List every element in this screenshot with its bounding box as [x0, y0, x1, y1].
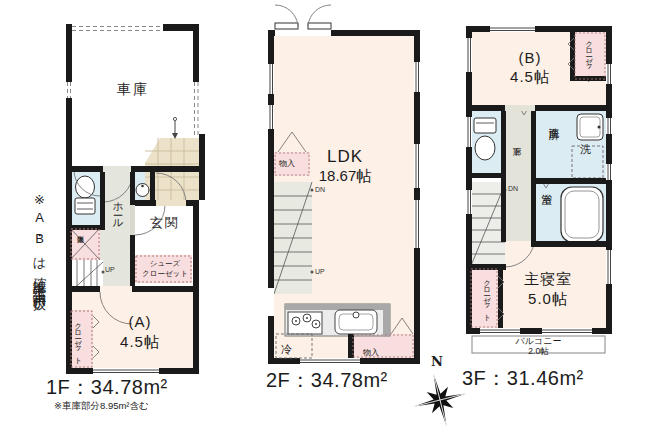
room-b-name: (B) — [480, 50, 580, 65]
washroom-label: 洗面所 — [549, 119, 560, 122]
closet-a-label: クローゼット — [74, 317, 82, 360]
room-b-size: 4.5帖 — [480, 69, 580, 84]
balcony-size: 2.0帖 — [472, 347, 605, 356]
closet-bedroom-label: クローゼット — [483, 274, 491, 317]
dn-label-3f: DN — [508, 185, 518, 192]
storage-right-label: 物入 — [363, 349, 379, 357]
up-label-1f: UP — [105, 266, 115, 273]
fridge-label: 冷 — [281, 344, 292, 355]
bedroom-name: 主寝室 — [498, 271, 598, 286]
up-label-2f: UP — [315, 268, 325, 275]
entrance-label: 玄関 — [150, 216, 180, 229]
ldk-name: LDK — [295, 148, 395, 165]
compass-north-label: N — [431, 355, 443, 368]
garage-label: 車庫 — [117, 82, 149, 96]
room-a-name: (A) — [90, 314, 190, 329]
floor1-footnote: ※車庫部分8.95m²含む — [54, 401, 149, 411]
balcony-name: バルコニー — [472, 337, 605, 346]
2f-entry-doors — [275, 5, 331, 29]
dn-label-2f: DN — [315, 186, 325, 193]
floor2-area-label: 2F：34.78m² — [266, 370, 388, 390]
bathroom-label: 浴室 — [542, 185, 553, 187]
floorplan-2f — [263, 4, 423, 368]
floor3-area-label: 3F：31.46m² — [462, 368, 584, 388]
shoes-closet-line1: シューズ — [150, 259, 181, 268]
bedroom-size: 5.0帖 — [498, 291, 598, 306]
closet-b-label: クローゼット — [585, 35, 593, 78]
shoes-closet-line2: クローゼット — [142, 269, 188, 278]
room-a-size: 4.5帖 — [90, 334, 190, 349]
floor1-area-label: 1F：34.78m² — [46, 377, 168, 397]
floorplan-canvas: N 車庫 ホール 玄関 シューズ クローゼット 下部物入 (A) 4.5帖 クロ… — [0, 0, 650, 430]
ldk-size: 18.67帖 — [295, 168, 395, 183]
2f-kitchen — [285, 304, 390, 336]
shoes-closet-label: シューズ クローゼット — [137, 259, 193, 279]
hall-label: ホール — [113, 195, 124, 225]
storage-left-label: 物入 — [279, 160, 295, 168]
corridor-label: 廊下 — [513, 140, 522, 144]
side-note: ※A・Bは確認申請上納戸扱い — [33, 192, 46, 382]
laundry-label: 洗 — [580, 144, 591, 155]
